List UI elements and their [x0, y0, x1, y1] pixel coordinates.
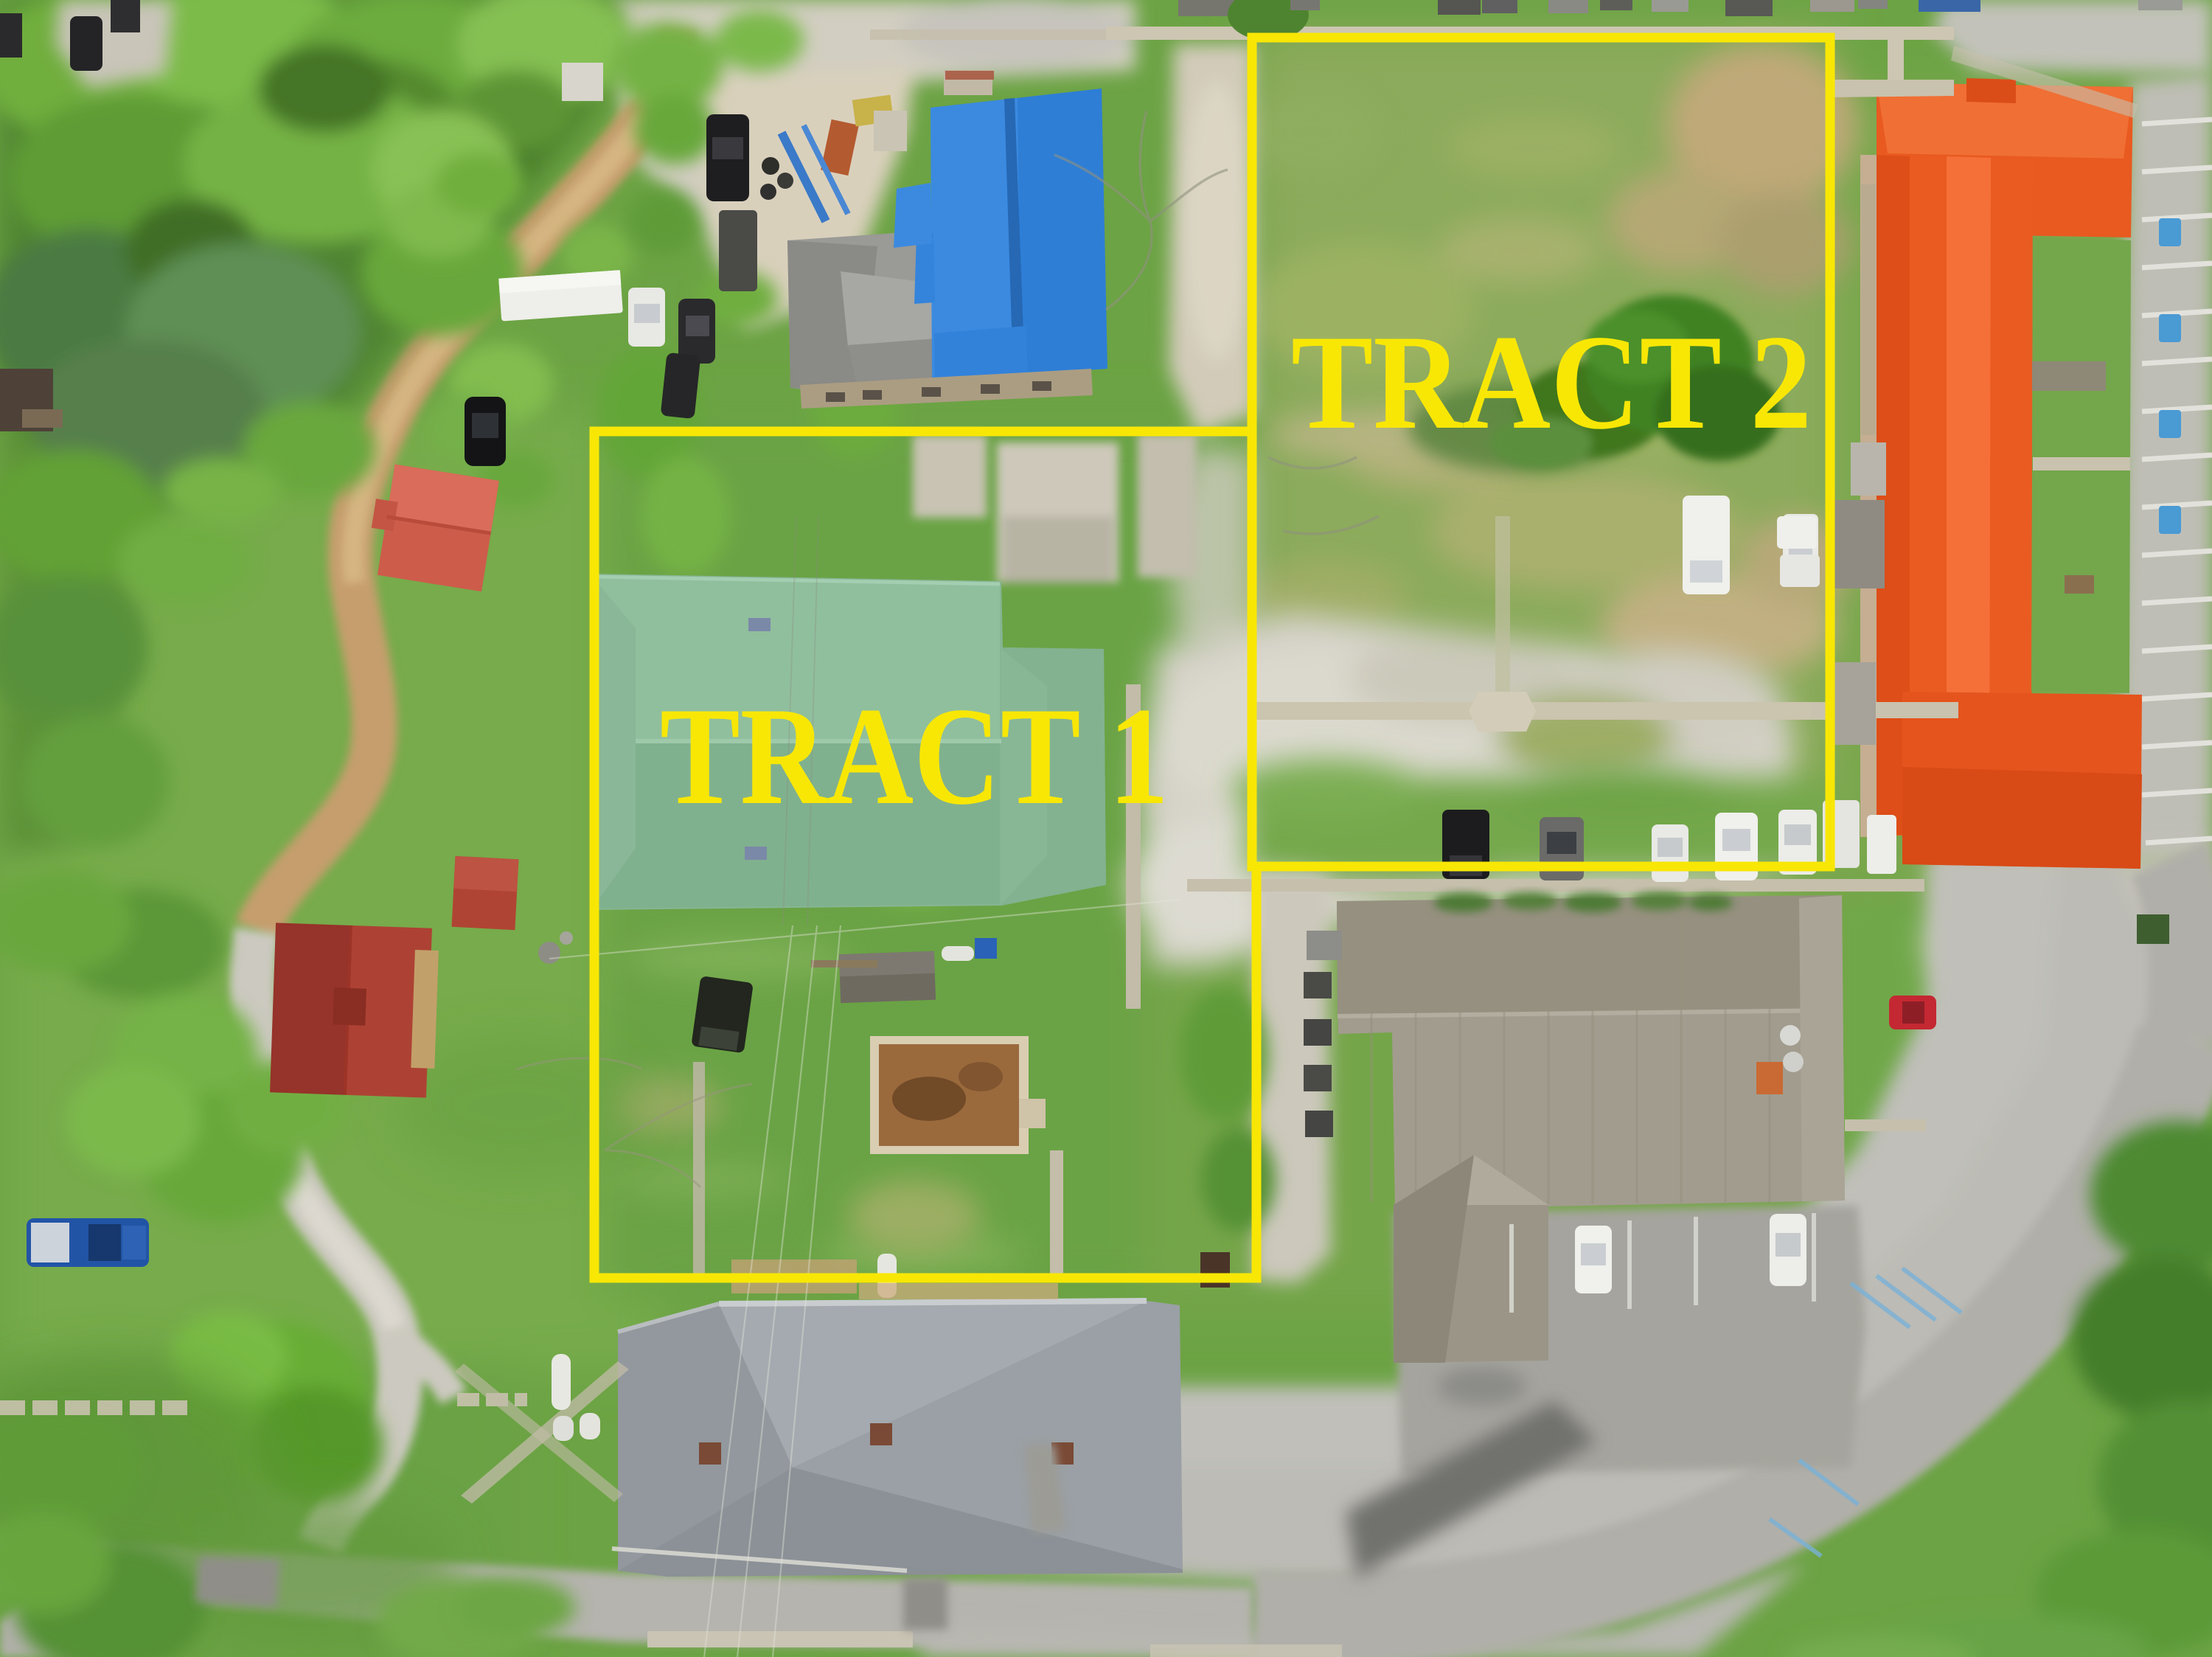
svg-text:TRACT 2: TRACT 2: [1291, 307, 1812, 457]
svg-text:TRACT 1: TRACT 1: [660, 679, 1169, 834]
